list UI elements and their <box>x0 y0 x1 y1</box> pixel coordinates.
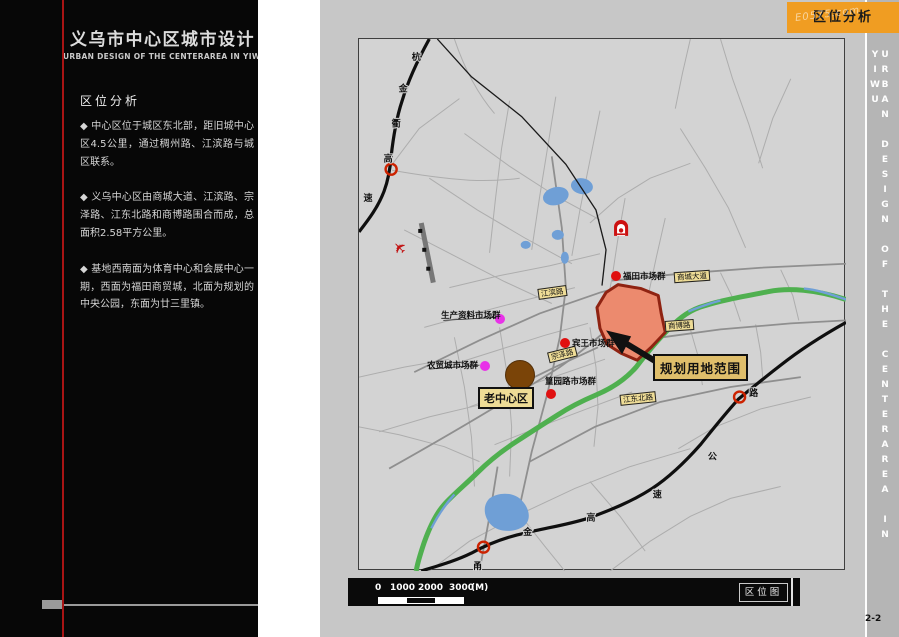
hw-bottom-char: 速 <box>653 488 662 500</box>
hw-left-char: 衢 <box>392 118 401 130</box>
old-center-marker <box>505 360 535 390</box>
hw-left-char: 金 <box>398 83 409 95</box>
bullet-1: ◆ 中心区位于城区东北部，距旧城中心区4.5公里，通过稠州路、江滨路与城区联系。 <box>80 118 254 171</box>
hw-bottom-char: 高 <box>586 511 595 523</box>
page-subtitle: URBAN DESIGN OF THE CENTERAREA IN YIWU <box>63 52 263 61</box>
hw-bottom-char: 金 <box>522 526 533 538</box>
market-label: 篁园路市场群 <box>545 375 596 387</box>
footer-rule <box>42 604 258 606</box>
hw-left-char: 速 <box>364 192 373 204</box>
location-map: 杭 金 衢 高 速 甬 金 高 速 公 路 江滨路 商城大道 商博路 宗泽路 江… <box>358 38 845 570</box>
market-label: 农贸城市场群 <box>427 359 478 371</box>
map-canvas: 杭 金 衢 高 速 甬 金 高 速 公 路 <box>359 39 846 571</box>
scale-tick: 0 <box>375 583 381 593</box>
market-label: 生产资料市场群 <box>441 309 501 321</box>
sidebar: 义乌市中心区城市设计 URBAN DESIGN OF THE CENTERARE… <box>0 0 258 637</box>
page-number: 2-2 <box>865 614 881 624</box>
runway <box>418 223 433 283</box>
old-center-label: 老中心区 <box>478 387 534 409</box>
red-accent-line <box>62 0 64 637</box>
map-caption: 区位图 <box>739 583 788 602</box>
market-dot-binwang <box>560 338 570 348</box>
market-dot-huangyuanlu <box>546 389 556 399</box>
page-title: 义乌市中心区城市设计 <box>70 25 260 50</box>
scale-bar: 0 1000 2000 3000 (M) 区位图 <box>348 578 800 606</box>
railway-line <box>437 39 606 286</box>
market-dot-nongmaocheng <box>480 361 490 371</box>
planning-area-label: 规划用地范围 <box>653 354 748 381</box>
bullet-3: ◆ 基地西南面为体育中心和会展中心一期，西面为福田商贸城，北面为规划的中央公园，… <box>80 261 254 314</box>
white-gutter <box>258 0 320 637</box>
train-station-icon <box>614 220 628 236</box>
hw-bottom-char: 甬 <box>473 561 482 571</box>
scale-unit: (M) <box>471 583 488 593</box>
scale-tick: 1000 <box>390 583 415 593</box>
section-title: 区位分析 <box>80 92 140 109</box>
scale-bar-divider <box>791 578 793 606</box>
market-label: 宾王市场群 <box>572 337 615 349</box>
side-strip-text: URBAN DESIGN OF THE CENTERAREA IN YIWU <box>872 50 890 608</box>
footer-rule-tick <box>42 600 63 609</box>
market-dot-futian <box>611 271 621 281</box>
scale-tick: 2000 <box>418 583 443 593</box>
hw-bottom-char: 路 <box>749 387 759 399</box>
scale-bar-segments <box>378 597 464 604</box>
hw-left-char: 杭 <box>412 51 421 63</box>
market-label: 福田市场群 <box>623 270 666 282</box>
hw-bottom-char: 公 <box>708 452 717 463</box>
hw-left-char: 高 <box>384 152 393 164</box>
header-tab: 区位分析 E0575.com <box>787 2 899 33</box>
page: 义乌市中心区城市设计 URBAN DESIGN OF THE CENTERARE… <box>0 0 899 637</box>
bullet-2: ◆ 义乌中心区由商城大道、江滨路、宗泽路、江东北路和商博路围合而成，总面积2.5… <box>80 189 254 242</box>
minor-streets <box>359 39 811 571</box>
section-body: ◆ 中心区位于城区东北部，距旧城中心区4.5公里，通过稠州路、江滨路与城区联系。… <box>80 118 254 332</box>
road-label-shangbo: 商博路 <box>665 319 694 332</box>
